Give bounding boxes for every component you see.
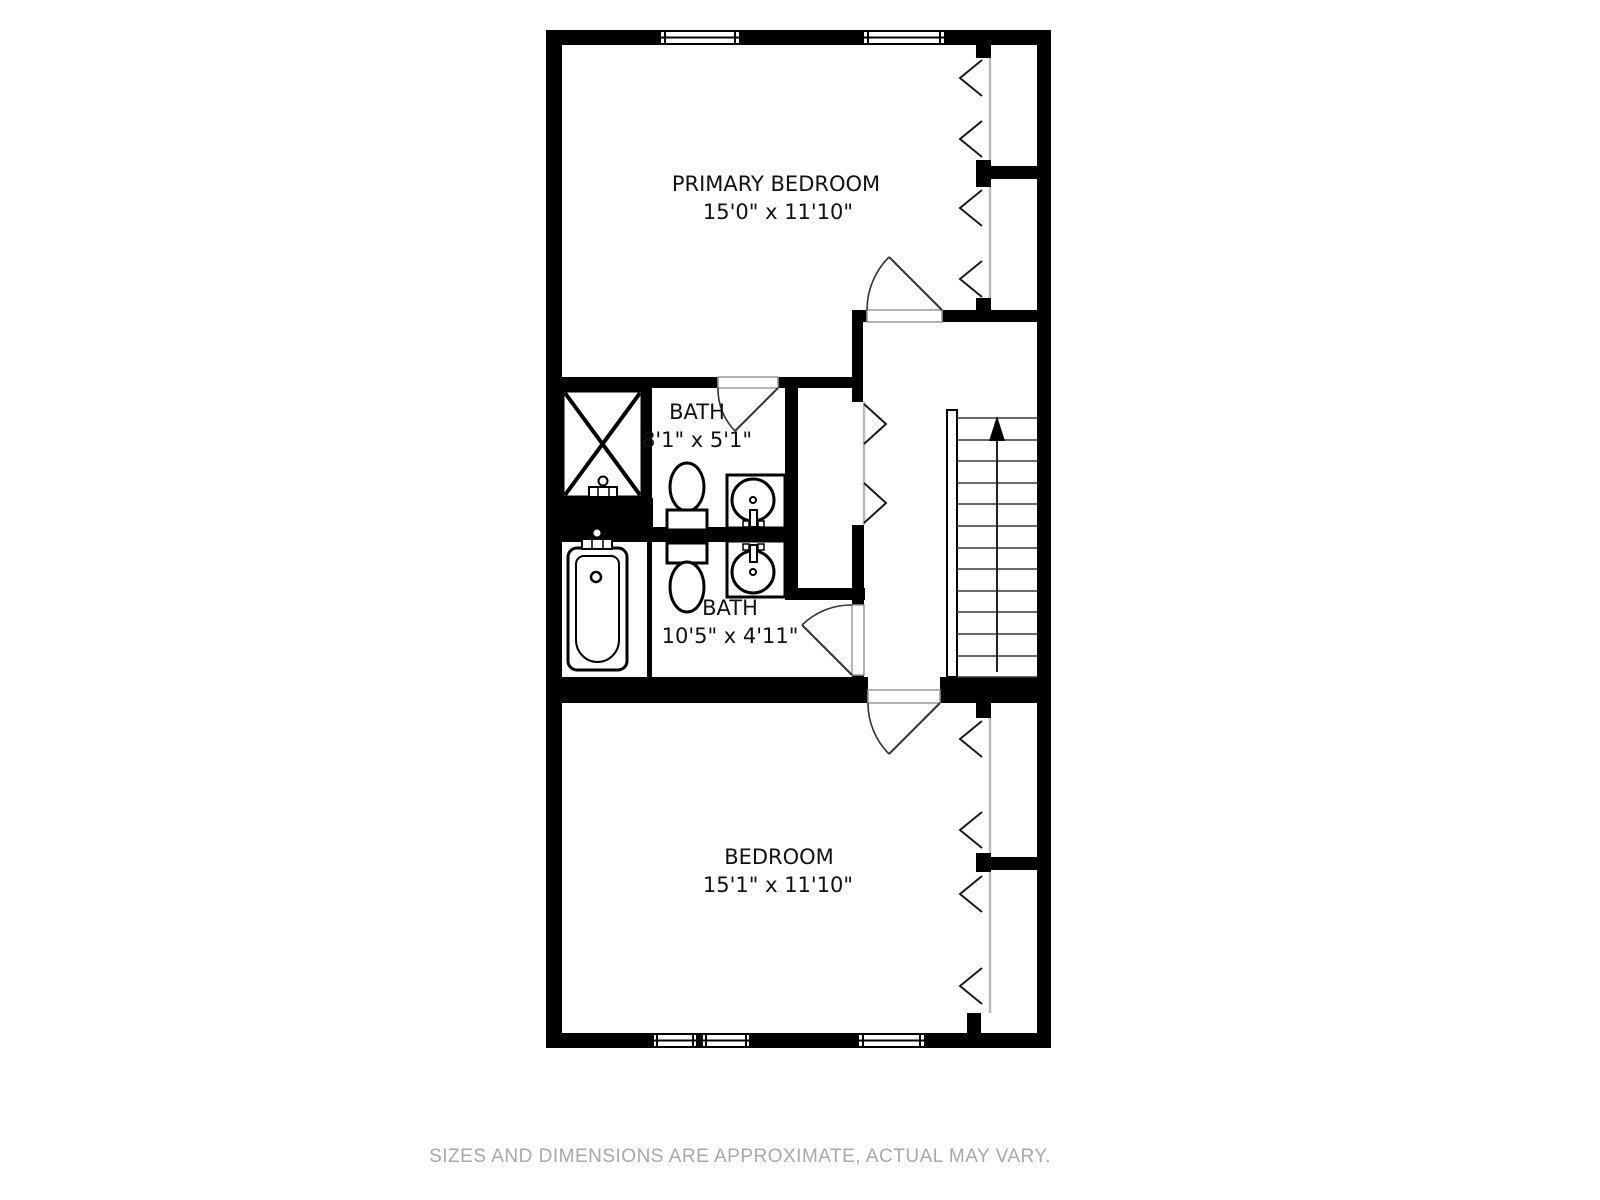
- bath1-dims: 8'1" x 5'1": [642, 428, 752, 452]
- hall-left-wall-mid: [852, 525, 864, 605]
- bifold-door-icon: [864, 404, 886, 444]
- bedroom-top-wall-right: [940, 677, 1051, 703]
- window: [653, 1034, 697, 1047]
- wall-bottom: [546, 1033, 1051, 1048]
- closet-stub: [976, 45, 991, 58]
- closet-divider-stub: [976, 160, 991, 187]
- closet-stub: [967, 1013, 981, 1033]
- bedroom-dims: 15'1" x 11'10": [703, 873, 853, 897]
- sink-icon: [727, 475, 785, 528]
- bifold-door-icon: [960, 121, 982, 157]
- bath1-top-wall-left: [562, 377, 718, 388]
- hall-closet: [864, 402, 886, 525]
- bifold-door-icon: [960, 876, 982, 912]
- disclaimer-text: SIZES AND DIMENSIONS ARE APPROXIMATE, AC…: [429, 1146, 1051, 1167]
- tub-partition-wall: [647, 542, 652, 677]
- bath2-door: [802, 605, 864, 675]
- hall-top-wall-right: [942, 310, 1051, 322]
- stair-handrail: [947, 410, 957, 677]
- primary-bedroom-door: [867, 257, 942, 322]
- closet-divider-wall: [991, 166, 1037, 179]
- bath2-label: BATH: [702, 596, 758, 620]
- shower-icon: [562, 390, 643, 498]
- bedroom-label: BEDROOM: [724, 845, 834, 869]
- closet-stub: [976, 298, 991, 310]
- bath2-dims: 10'5" x 4'11": [662, 624, 799, 648]
- closet-left-wall: [785, 377, 798, 600]
- primary-bedroom-closets: [960, 45, 1037, 310]
- wall-top: [546, 30, 1051, 45]
- bathtub-icon: [568, 529, 627, 671]
- bedroom-door: [868, 690, 940, 754]
- bifold-door-icon: [960, 812, 982, 848]
- floor-plan-page: PRIMARY BEDROOM 15'0" x 11'10" BATH 8'1"…: [0, 0, 1600, 1200]
- closet-divider-stub: [976, 853, 991, 872]
- staircase: [947, 410, 1037, 677]
- toilet-icon: [667, 543, 707, 612]
- window: [863, 31, 945, 44]
- sink-icon: [727, 541, 785, 597]
- bath1-label: BATH: [669, 400, 725, 424]
- primary-bedroom-label: PRIMARY BEDROOM: [672, 172, 880, 196]
- window: [702, 1034, 750, 1047]
- bifold-door-icon: [960, 721, 982, 757]
- toilet-icon: [667, 463, 707, 530]
- bedroom-top-wall-left: [546, 677, 868, 703]
- hall-left-wall-upper: [852, 310, 863, 402]
- closet-stub: [976, 703, 991, 718]
- window: [660, 31, 740, 44]
- bifold-door-icon: [960, 968, 982, 1004]
- wall-right: [1037, 30, 1051, 1048]
- bath1-door: [718, 377, 778, 431]
- bedroom-closets: [960, 703, 1037, 1033]
- floor-plan-drawing: PRIMARY BEDROOM 15'0" x 11'10" BATH 8'1"…: [0, 0, 1600, 1200]
- primary-bedroom-dims: 15'0" x 11'10": [703, 200, 853, 224]
- bifold-door-icon: [960, 261, 982, 297]
- bifold-door-icon: [960, 190, 982, 226]
- bifold-door-icon: [864, 483, 886, 523]
- closet-divider-wall: [991, 857, 1037, 870]
- bifold-door-icon: [960, 60, 982, 96]
- window: [858, 1034, 925, 1047]
